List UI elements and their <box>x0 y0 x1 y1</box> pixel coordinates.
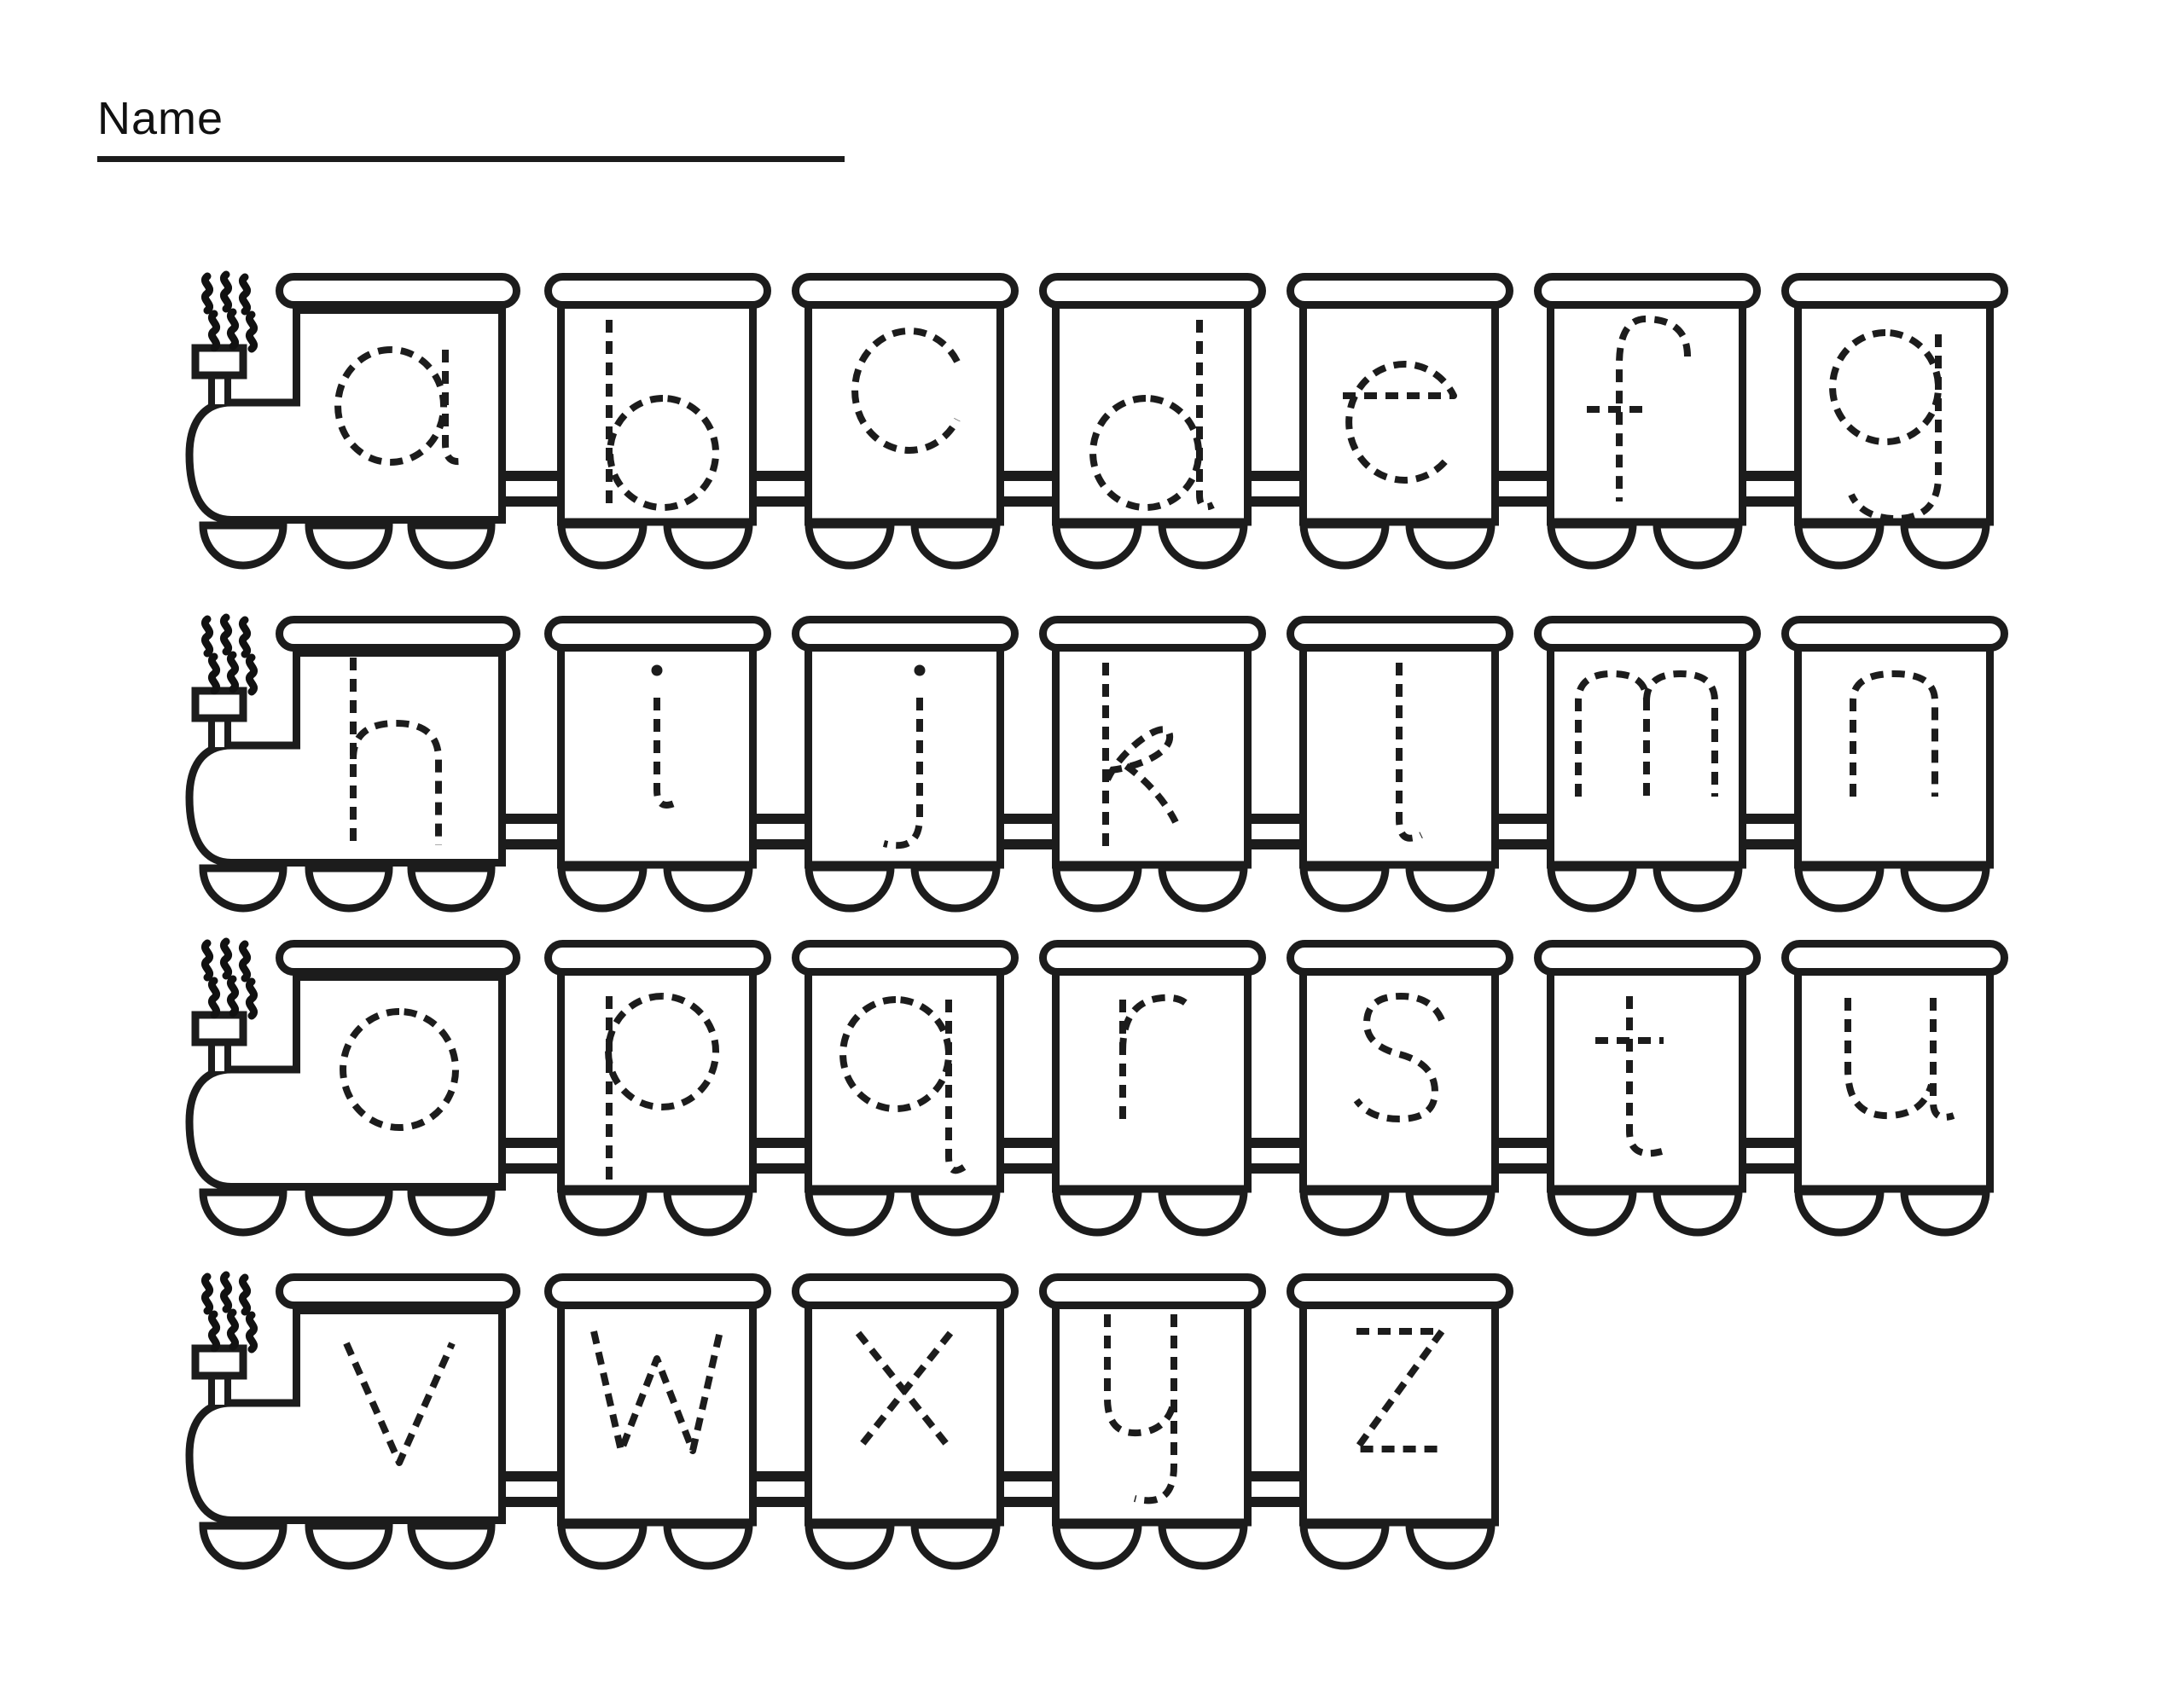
wheel <box>561 867 643 908</box>
car-roof <box>1291 944 1510 972</box>
train-engine-h <box>182 616 523 916</box>
train-car-y <box>1039 1273 1266 1574</box>
train-engine-art <box>182 1273 523 1574</box>
car-roof <box>549 277 768 305</box>
wheel <box>915 867 996 908</box>
car-body <box>1551 968 1743 1189</box>
train-engine-art <box>182 616 523 916</box>
engine-chimney <box>195 1348 243 1405</box>
wheel <box>1162 1191 1244 1232</box>
car-roof <box>1538 620 1757 648</box>
train-row-2 <box>182 616 2013 916</box>
car-body <box>809 644 1001 865</box>
engine-smoke-icon <box>205 942 253 1016</box>
train-car-art <box>544 940 771 1240</box>
wheel <box>667 525 749 565</box>
wheel <box>809 1191 891 1232</box>
car-roof <box>1538 277 1757 305</box>
train-row-1 <box>182 273 2013 573</box>
wheel <box>1798 867 1880 908</box>
wheel <box>1798 1191 1880 1232</box>
engine-cab-roof <box>280 944 517 972</box>
train-car-x <box>792 1273 1019 1574</box>
wheel <box>1304 1191 1385 1232</box>
train-car-art <box>1781 616 2008 916</box>
train-car-c <box>792 273 1019 573</box>
train-car-d <box>1039 273 1266 573</box>
wheel <box>667 1191 749 1232</box>
wheel <box>1056 1191 1138 1232</box>
wheel <box>1657 867 1739 908</box>
train-car-p <box>544 940 771 1240</box>
wheel <box>915 1525 996 1566</box>
wheel <box>1056 525 1138 565</box>
train-car-i <box>544 616 771 916</box>
car-roof <box>1786 277 2005 305</box>
train-car-art <box>1039 1273 1266 1574</box>
train-engine-o <box>182 940 523 1240</box>
car-roof <box>1291 1278 1510 1306</box>
worksheet-page: Name <box>0 0 2184 1687</box>
car-roof <box>796 944 1015 972</box>
wheel <box>1409 1525 1491 1566</box>
name-label: Name <box>97 96 224 142</box>
wheel <box>309 868 389 908</box>
wheel <box>203 525 283 565</box>
car-body <box>809 1301 1001 1522</box>
wheel <box>1409 525 1491 565</box>
car-body <box>1056 1301 1248 1522</box>
train-car-e <box>1287 273 1513 573</box>
wheel <box>1409 1191 1491 1232</box>
train-car-u <box>1781 940 2008 1240</box>
train-car-art <box>544 616 771 916</box>
wheel <box>1056 1525 1138 1566</box>
train-car-art <box>544 1273 771 1574</box>
train-row-3 <box>182 940 2013 1240</box>
wheel <box>309 1192 389 1232</box>
wheel <box>561 1525 643 1566</box>
train-car-art <box>792 273 1019 573</box>
train-car-art <box>1039 616 1266 916</box>
car-roof <box>549 944 768 972</box>
engine-chimney <box>195 691 243 747</box>
car-body <box>561 968 753 1189</box>
train-car-r <box>1039 940 1266 1240</box>
train-car-j <box>792 616 1019 916</box>
wheel <box>411 525 491 565</box>
wheel <box>915 1191 996 1232</box>
engine-cab-roof <box>280 277 517 305</box>
wheel <box>1657 525 1739 565</box>
wheel <box>1551 525 1633 565</box>
wheel <box>1162 525 1244 565</box>
wheel <box>411 868 491 908</box>
train-car-t <box>1534 940 1761 1240</box>
engine-chimney <box>195 348 243 404</box>
train-car-art <box>1039 940 1266 1240</box>
car-body <box>561 1301 753 1522</box>
wheel <box>1056 867 1138 908</box>
wheel <box>1409 867 1491 908</box>
car-roof <box>1786 944 2005 972</box>
car-roof <box>796 620 1015 648</box>
train-engine-art <box>182 273 523 573</box>
train-car-f <box>1534 273 1761 573</box>
train-car-art <box>1287 616 1513 916</box>
car-roof <box>1043 277 1263 305</box>
train-car-art <box>1534 273 1761 573</box>
train-car-art <box>1287 273 1513 573</box>
train-car-z <box>1287 1273 1513 1574</box>
car-roof <box>796 277 1015 305</box>
train-car-g <box>1781 273 2008 573</box>
car-body <box>561 301 753 522</box>
letter-dot <box>915 665 926 676</box>
engine-smoke-icon <box>205 1275 253 1349</box>
car-body <box>1056 968 1248 1189</box>
engine-chimney <box>195 1015 243 1071</box>
engine-smoke-icon <box>205 275 253 349</box>
wheel <box>809 867 891 908</box>
wheel <box>203 1192 283 1232</box>
train-car-art <box>1781 940 2008 1240</box>
wheel <box>1551 1191 1633 1232</box>
train-car-m <box>1534 616 1761 916</box>
car-roof <box>549 1278 768 1306</box>
car-roof <box>796 1278 1015 1306</box>
train-car-w <box>544 1273 771 1574</box>
engine-cab-roof <box>280 620 517 648</box>
wheel <box>1304 525 1385 565</box>
train-car-k <box>1039 616 1266 916</box>
wheel <box>561 525 643 565</box>
car-roof <box>1538 944 1757 972</box>
car-body <box>1798 968 1990 1189</box>
train-car-art <box>1287 940 1513 1240</box>
car-body <box>561 644 753 865</box>
engine-smoke-icon <box>205 617 253 692</box>
wheel <box>411 1526 491 1566</box>
train-car-art <box>1534 616 1761 916</box>
car-roof <box>1291 620 1510 648</box>
train-car-art <box>1534 940 1761 1240</box>
train-car-art <box>1287 1273 1513 1574</box>
train-engine-v <box>182 1273 523 1574</box>
train-car-art <box>1781 273 2008 573</box>
car-roof <box>1043 944 1263 972</box>
car-body <box>1056 301 1248 522</box>
wheel <box>809 1525 891 1566</box>
train-car-q <box>792 940 1019 1240</box>
wheel <box>1304 867 1385 908</box>
car-body <box>1304 968 1496 1189</box>
train-car-s <box>1287 940 1513 1240</box>
train-car-art <box>792 616 1019 916</box>
wheel <box>1162 867 1244 908</box>
train-row-4 <box>182 1273 2013 1574</box>
train-engine-a <box>182 273 523 573</box>
train-car-art <box>1039 273 1266 573</box>
train-engine-art <box>182 940 523 1240</box>
car-body <box>1551 301 1743 522</box>
train-car-art <box>792 1273 1019 1574</box>
wheel <box>1304 1525 1385 1566</box>
wheel <box>667 1525 749 1566</box>
wheel <box>1904 867 1986 908</box>
train-car-b <box>544 273 771 573</box>
car-roof <box>1291 277 1510 305</box>
car-body <box>1304 301 1496 522</box>
wheel <box>203 1526 283 1566</box>
wheel <box>809 525 891 565</box>
wheel <box>203 868 283 908</box>
train-car-n <box>1781 616 2008 916</box>
wheel <box>561 1191 643 1232</box>
car-roof <box>1786 620 2005 648</box>
engine-cab-roof <box>280 1278 517 1306</box>
wheel <box>411 1192 491 1232</box>
wheel <box>309 525 389 565</box>
car-roof <box>1043 620 1263 648</box>
wheel <box>915 525 996 565</box>
train-car-art <box>544 273 771 573</box>
name-write-line <box>97 156 845 162</box>
wheel <box>309 1526 389 1566</box>
wheel <box>1162 1525 1244 1566</box>
car-roof <box>1043 1278 1263 1306</box>
wheel <box>1551 867 1633 908</box>
wheel <box>667 867 749 908</box>
car-roof <box>549 620 768 648</box>
wheel <box>1798 525 1880 565</box>
wheel <box>1904 525 1986 565</box>
train-car-l <box>1287 616 1513 916</box>
wheel <box>1904 1191 1986 1232</box>
letter-dot <box>652 665 663 676</box>
train-car-art <box>792 940 1019 1240</box>
wheel <box>1657 1191 1739 1232</box>
